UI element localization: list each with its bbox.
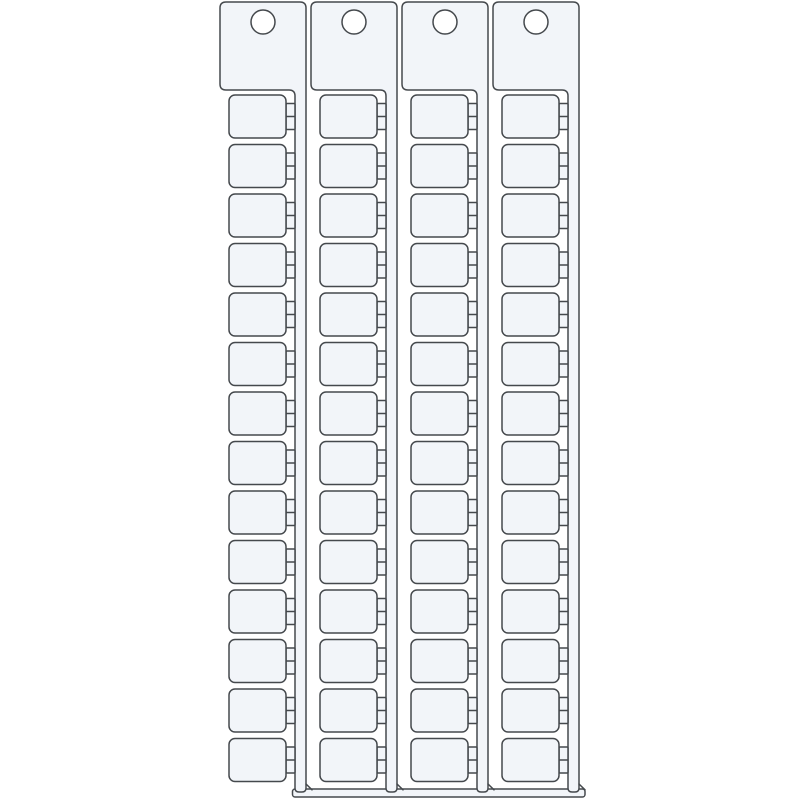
marker-tag <box>411 640 468 683</box>
marker-tag <box>411 689 468 732</box>
marker-tag <box>502 244 559 287</box>
marker-tag <box>229 689 286 732</box>
marker-tag <box>411 293 468 336</box>
marker-tag <box>502 145 559 188</box>
marker-tag <box>320 491 377 534</box>
marker-tag <box>411 491 468 534</box>
marker-card-drawing <box>0 0 800 800</box>
marker-tag <box>320 145 377 188</box>
marker-tag <box>502 95 559 138</box>
hanger-hole-icon <box>433 10 457 34</box>
marker-tag <box>229 293 286 336</box>
marker-tag <box>411 343 468 386</box>
marker-tag <box>411 739 468 782</box>
marker-tag <box>502 739 559 782</box>
marker-tag <box>320 590 377 633</box>
marker-tag <box>411 244 468 287</box>
card-bottom-bar <box>293 789 586 797</box>
marker-tag <box>411 145 468 188</box>
marker-tag <box>320 293 377 336</box>
marker-tag <box>320 343 377 386</box>
marker-tag <box>502 392 559 435</box>
marker-tag <box>411 194 468 237</box>
marker-tag <box>320 739 377 782</box>
marker-tag <box>320 194 377 237</box>
marker-tag <box>229 491 286 534</box>
marker-tag <box>502 689 559 732</box>
marker-tag <box>320 640 377 683</box>
marker-tag <box>502 491 559 534</box>
marker-tag <box>502 541 559 584</box>
marker-tag <box>320 244 377 287</box>
marker-tag <box>411 95 468 138</box>
marker-tag <box>502 293 559 336</box>
marker-card-svg <box>0 0 800 800</box>
marker-tag <box>229 194 286 237</box>
hanger-hole-icon <box>524 10 548 34</box>
marker-tag <box>229 739 286 782</box>
marker-tag <box>320 392 377 435</box>
hanger-hole-icon <box>342 10 366 34</box>
marker-tag <box>411 541 468 584</box>
marker-tag <box>411 442 468 485</box>
marker-tag <box>229 244 286 287</box>
hanger-hole-icon <box>251 10 275 34</box>
marker-tag <box>502 442 559 485</box>
marker-tag <box>229 442 286 485</box>
marker-tag <box>229 541 286 584</box>
marker-tag <box>229 343 286 386</box>
marker-tag <box>502 194 559 237</box>
marker-tag <box>229 590 286 633</box>
marker-tag <box>411 392 468 435</box>
marker-tag <box>502 343 559 386</box>
marker-tag <box>411 590 468 633</box>
marker-tag <box>320 95 377 138</box>
marker-tag <box>229 95 286 138</box>
marker-tag <box>229 392 286 435</box>
marker-tag <box>229 145 286 188</box>
marker-tag <box>502 590 559 633</box>
marker-tag <box>320 442 377 485</box>
marker-tag <box>320 541 377 584</box>
marker-tag <box>502 640 559 683</box>
marker-tag <box>320 689 377 732</box>
marker-tag <box>229 640 286 683</box>
